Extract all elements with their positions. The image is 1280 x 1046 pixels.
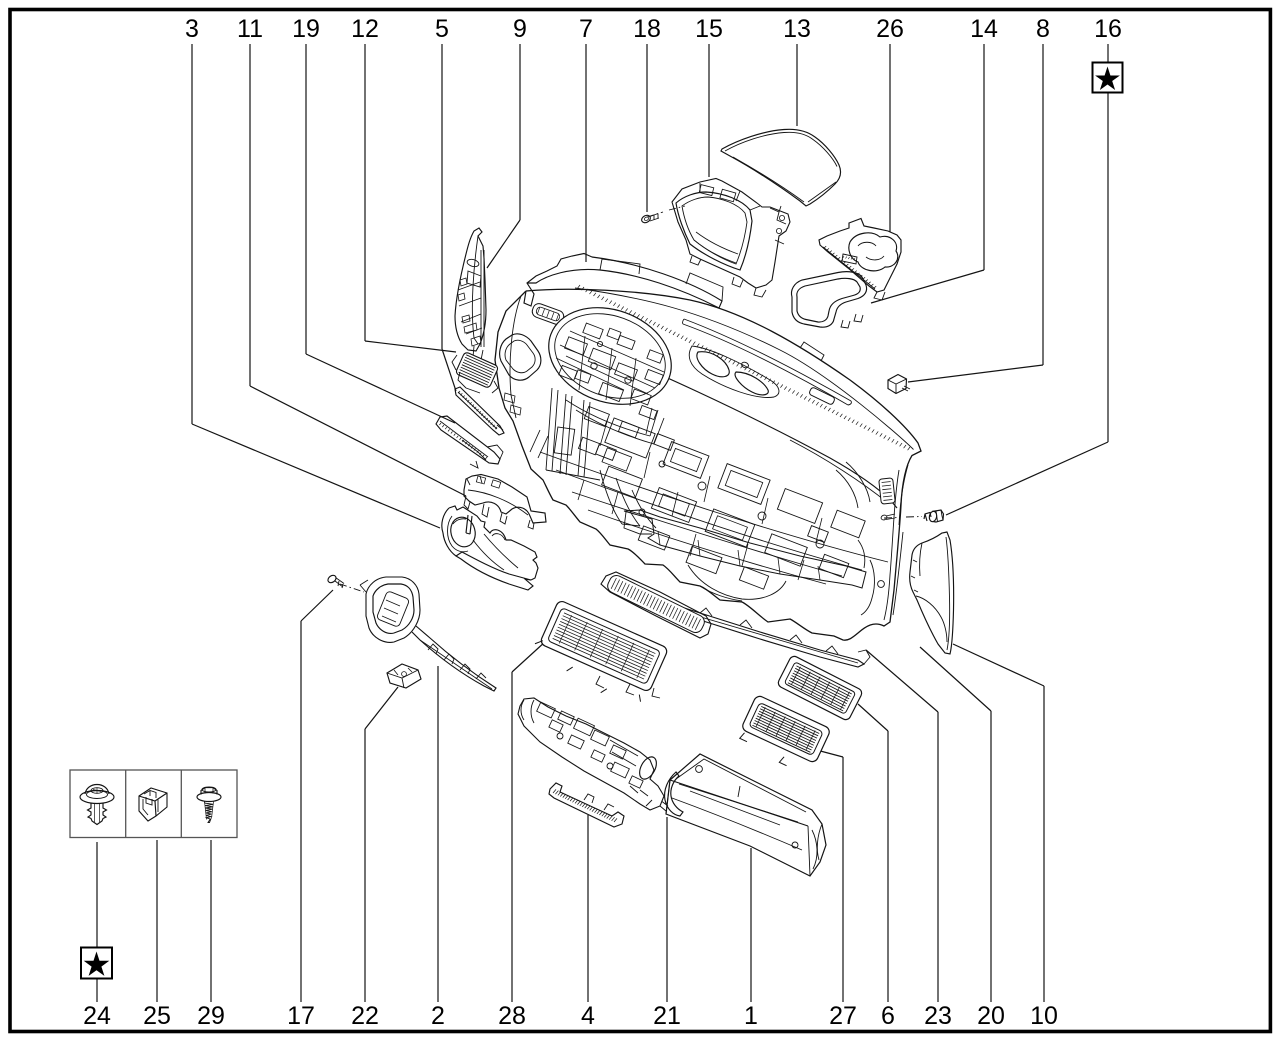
svg-text:15: 15	[695, 15, 723, 43]
svg-text:28: 28	[498, 1002, 526, 1030]
svg-text:19: 19	[292, 15, 320, 43]
svg-text:14: 14	[970, 15, 998, 43]
svg-text:25: 25	[143, 1002, 171, 1030]
svg-text:2: 2	[431, 1002, 445, 1030]
svg-text:9: 9	[513, 15, 527, 43]
svg-text:4: 4	[581, 1002, 595, 1030]
svg-text:16: 16	[1094, 15, 1122, 43]
svg-text:11: 11	[237, 15, 263, 43]
svg-text:13: 13	[783, 15, 811, 43]
svg-text:6: 6	[881, 1002, 895, 1030]
svg-text:17: 17	[287, 1002, 315, 1030]
svg-text:8: 8	[1036, 15, 1050, 43]
svg-text:24: 24	[83, 1002, 111, 1030]
svg-text:12: 12	[351, 15, 379, 43]
svg-text:21: 21	[653, 1002, 681, 1030]
svg-text:10: 10	[1030, 1002, 1058, 1030]
svg-text:5: 5	[435, 15, 449, 43]
svg-text:26: 26	[876, 15, 904, 43]
svg-text:7: 7	[579, 15, 593, 43]
svg-text:18: 18	[633, 15, 661, 43]
svg-text:22: 22	[351, 1002, 379, 1030]
svg-text:23: 23	[924, 1002, 952, 1030]
svg-text:1: 1	[744, 1002, 758, 1030]
svg-text:27: 27	[829, 1002, 857, 1030]
svg-text:29: 29	[197, 1002, 225, 1030]
svg-text:20: 20	[977, 1002, 1005, 1030]
svg-text:3: 3	[185, 15, 199, 43]
